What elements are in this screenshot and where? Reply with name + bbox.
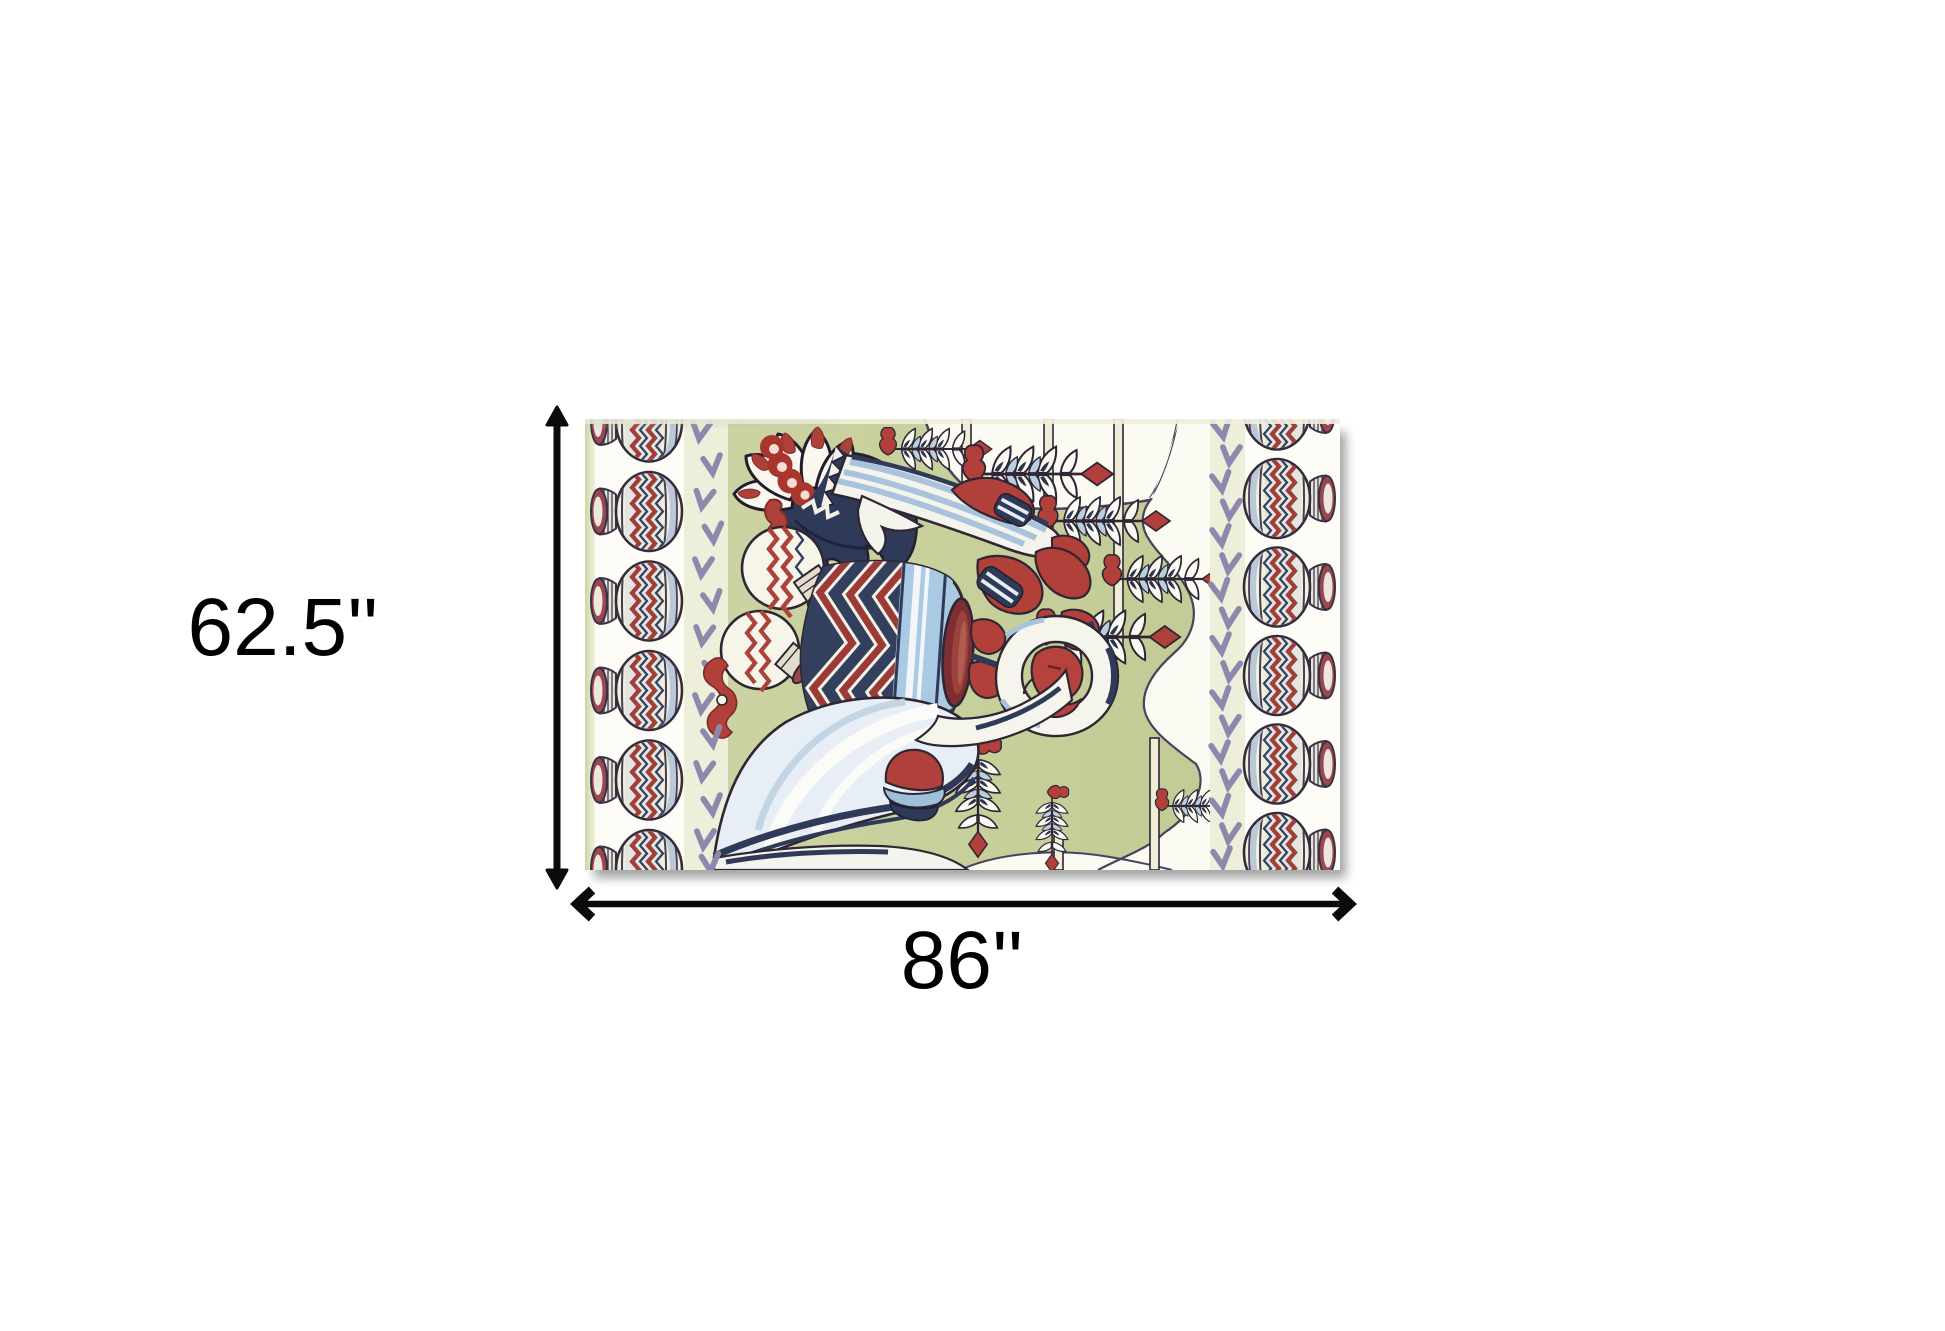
svg-text:62.5'': 62.5'' — [188, 582, 379, 673]
svg-text:86'': 86'' — [901, 915, 1024, 1006]
